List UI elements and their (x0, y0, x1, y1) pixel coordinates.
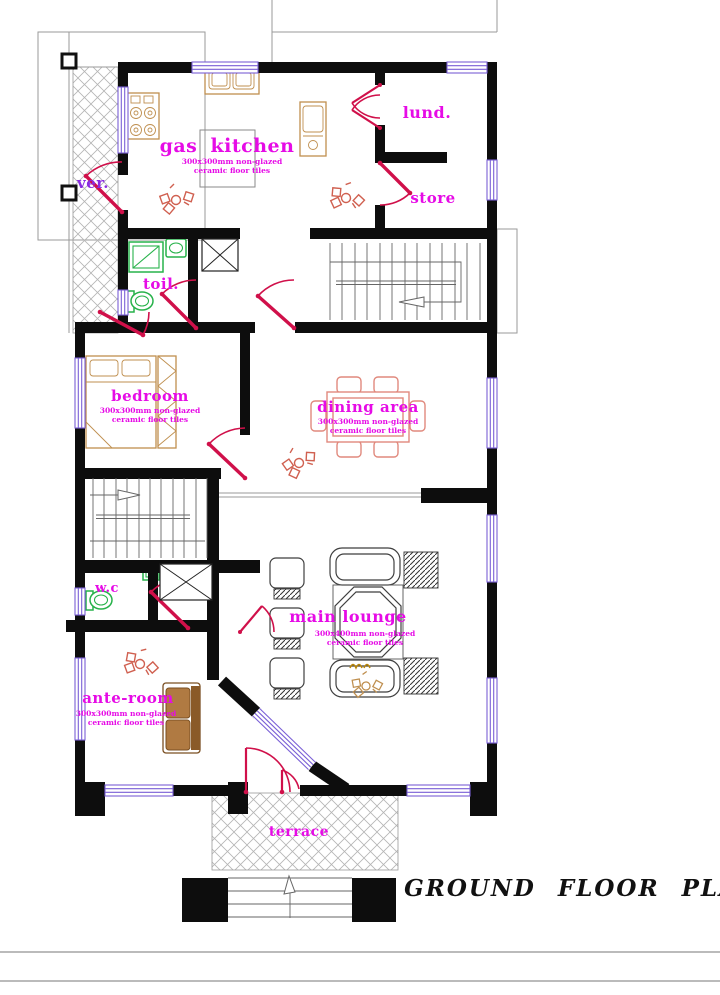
dining-chair (374, 377, 398, 393)
lounge-side-table (404, 552, 438, 588)
terrace-column (182, 878, 228, 922)
column-marker (62, 186, 76, 200)
label-veranda: ver. (76, 174, 109, 192)
lounge-chairs (270, 558, 304, 699)
label-terrace: terrace (269, 824, 329, 840)
terrace-column (352, 878, 396, 922)
label-ante-tile-2: ceramic floor tiles (88, 718, 164, 727)
toilet-wc (126, 291, 153, 312)
kitchen-corner-sketch (325, 177, 368, 219)
label-bedroom-tile-1: 300x300mm non-glazed (100, 406, 201, 415)
label-bedroom-tile-2: ceramic floor tiles (112, 415, 188, 424)
label-lounge-tile-2: ceramic floor tiles (327, 638, 403, 647)
label-ante-room: ante-room (82, 689, 174, 707)
kitchen-stove (127, 93, 159, 139)
dining-chair (374, 441, 398, 457)
door-main-entrance (244, 748, 299, 794)
window-kitchen-north (192, 62, 258, 73)
window-store-east (487, 160, 497, 200)
label-wc: w.c (94, 581, 119, 596)
floor-plan-drawing: gas kitchen 300x300mm non-glazed ceramic… (0, 0, 720, 995)
staircase-upper (330, 243, 480, 320)
door-store (378, 161, 413, 205)
door-laundry-double (352, 83, 382, 130)
ante-chairs-sketch (119, 642, 163, 685)
label-kitchen: gas kitchen (160, 135, 295, 157)
window-lounge-south (407, 785, 470, 796)
label-ante-tile-1: 300x300mm non-glazed (76, 709, 177, 718)
kitchen-chairs-sketch (160, 184, 194, 214)
shaft-box-hall (202, 239, 238, 271)
label-store: store (410, 189, 455, 207)
label-kitchen-tile-2: ceramic floor tiles (194, 166, 270, 175)
terrace-steps (228, 876, 352, 918)
lounge-sofa-top (330, 548, 400, 585)
window-kitchen-west (118, 87, 128, 153)
label-main-lounge: main lounge (289, 607, 406, 626)
label-dining-tile-2: ceramic floor tiles (330, 426, 406, 435)
lounge-side-table (404, 658, 438, 694)
window-ante-south (105, 785, 173, 796)
floor-plan: gas kitchen 300x300mm non-glazed ceramic… (0, 0, 720, 995)
label-toilet: toil. (143, 275, 179, 293)
door-dining-hall (256, 280, 297, 330)
dining-chair (337, 441, 361, 457)
toilet-shower (129, 242, 163, 272)
plan-title: GROUND FLOOR PLAN (404, 875, 720, 902)
label-dining-tile-1: 300x300mm non-glazed (318, 417, 419, 426)
window-wc-west (75, 588, 85, 615)
window-dining-east (487, 378, 497, 448)
window-bedroom-west (75, 358, 85, 428)
label-kitchen-tile-1: 300x300mm non-glazed (182, 157, 283, 166)
shaft-box-wc (160, 564, 212, 600)
dining-chair (337, 377, 361, 393)
toilet-basin (166, 239, 186, 257)
window-toilet-west (118, 290, 128, 315)
open-beam-line (219, 493, 421, 497)
dining-corner-sketch (279, 443, 320, 481)
label-dining: dining area (317, 398, 419, 416)
label-bedroom: bedroom (111, 387, 189, 405)
window-lounge-east-2 (487, 678, 497, 743)
window-lounge-east-1 (487, 515, 497, 582)
window-entry-diagonal (253, 708, 316, 769)
kitchen-counter (300, 102, 326, 156)
column-marker (62, 54, 76, 68)
window-laundry-north (447, 62, 487, 73)
diagonal-wall (222, 681, 258, 714)
label-laundry: lund. (403, 103, 452, 122)
staircase-lower (90, 478, 207, 558)
door-ante-room (238, 606, 274, 634)
label-lounge-tile-1: 300x400mm non-glazed (315, 629, 416, 638)
